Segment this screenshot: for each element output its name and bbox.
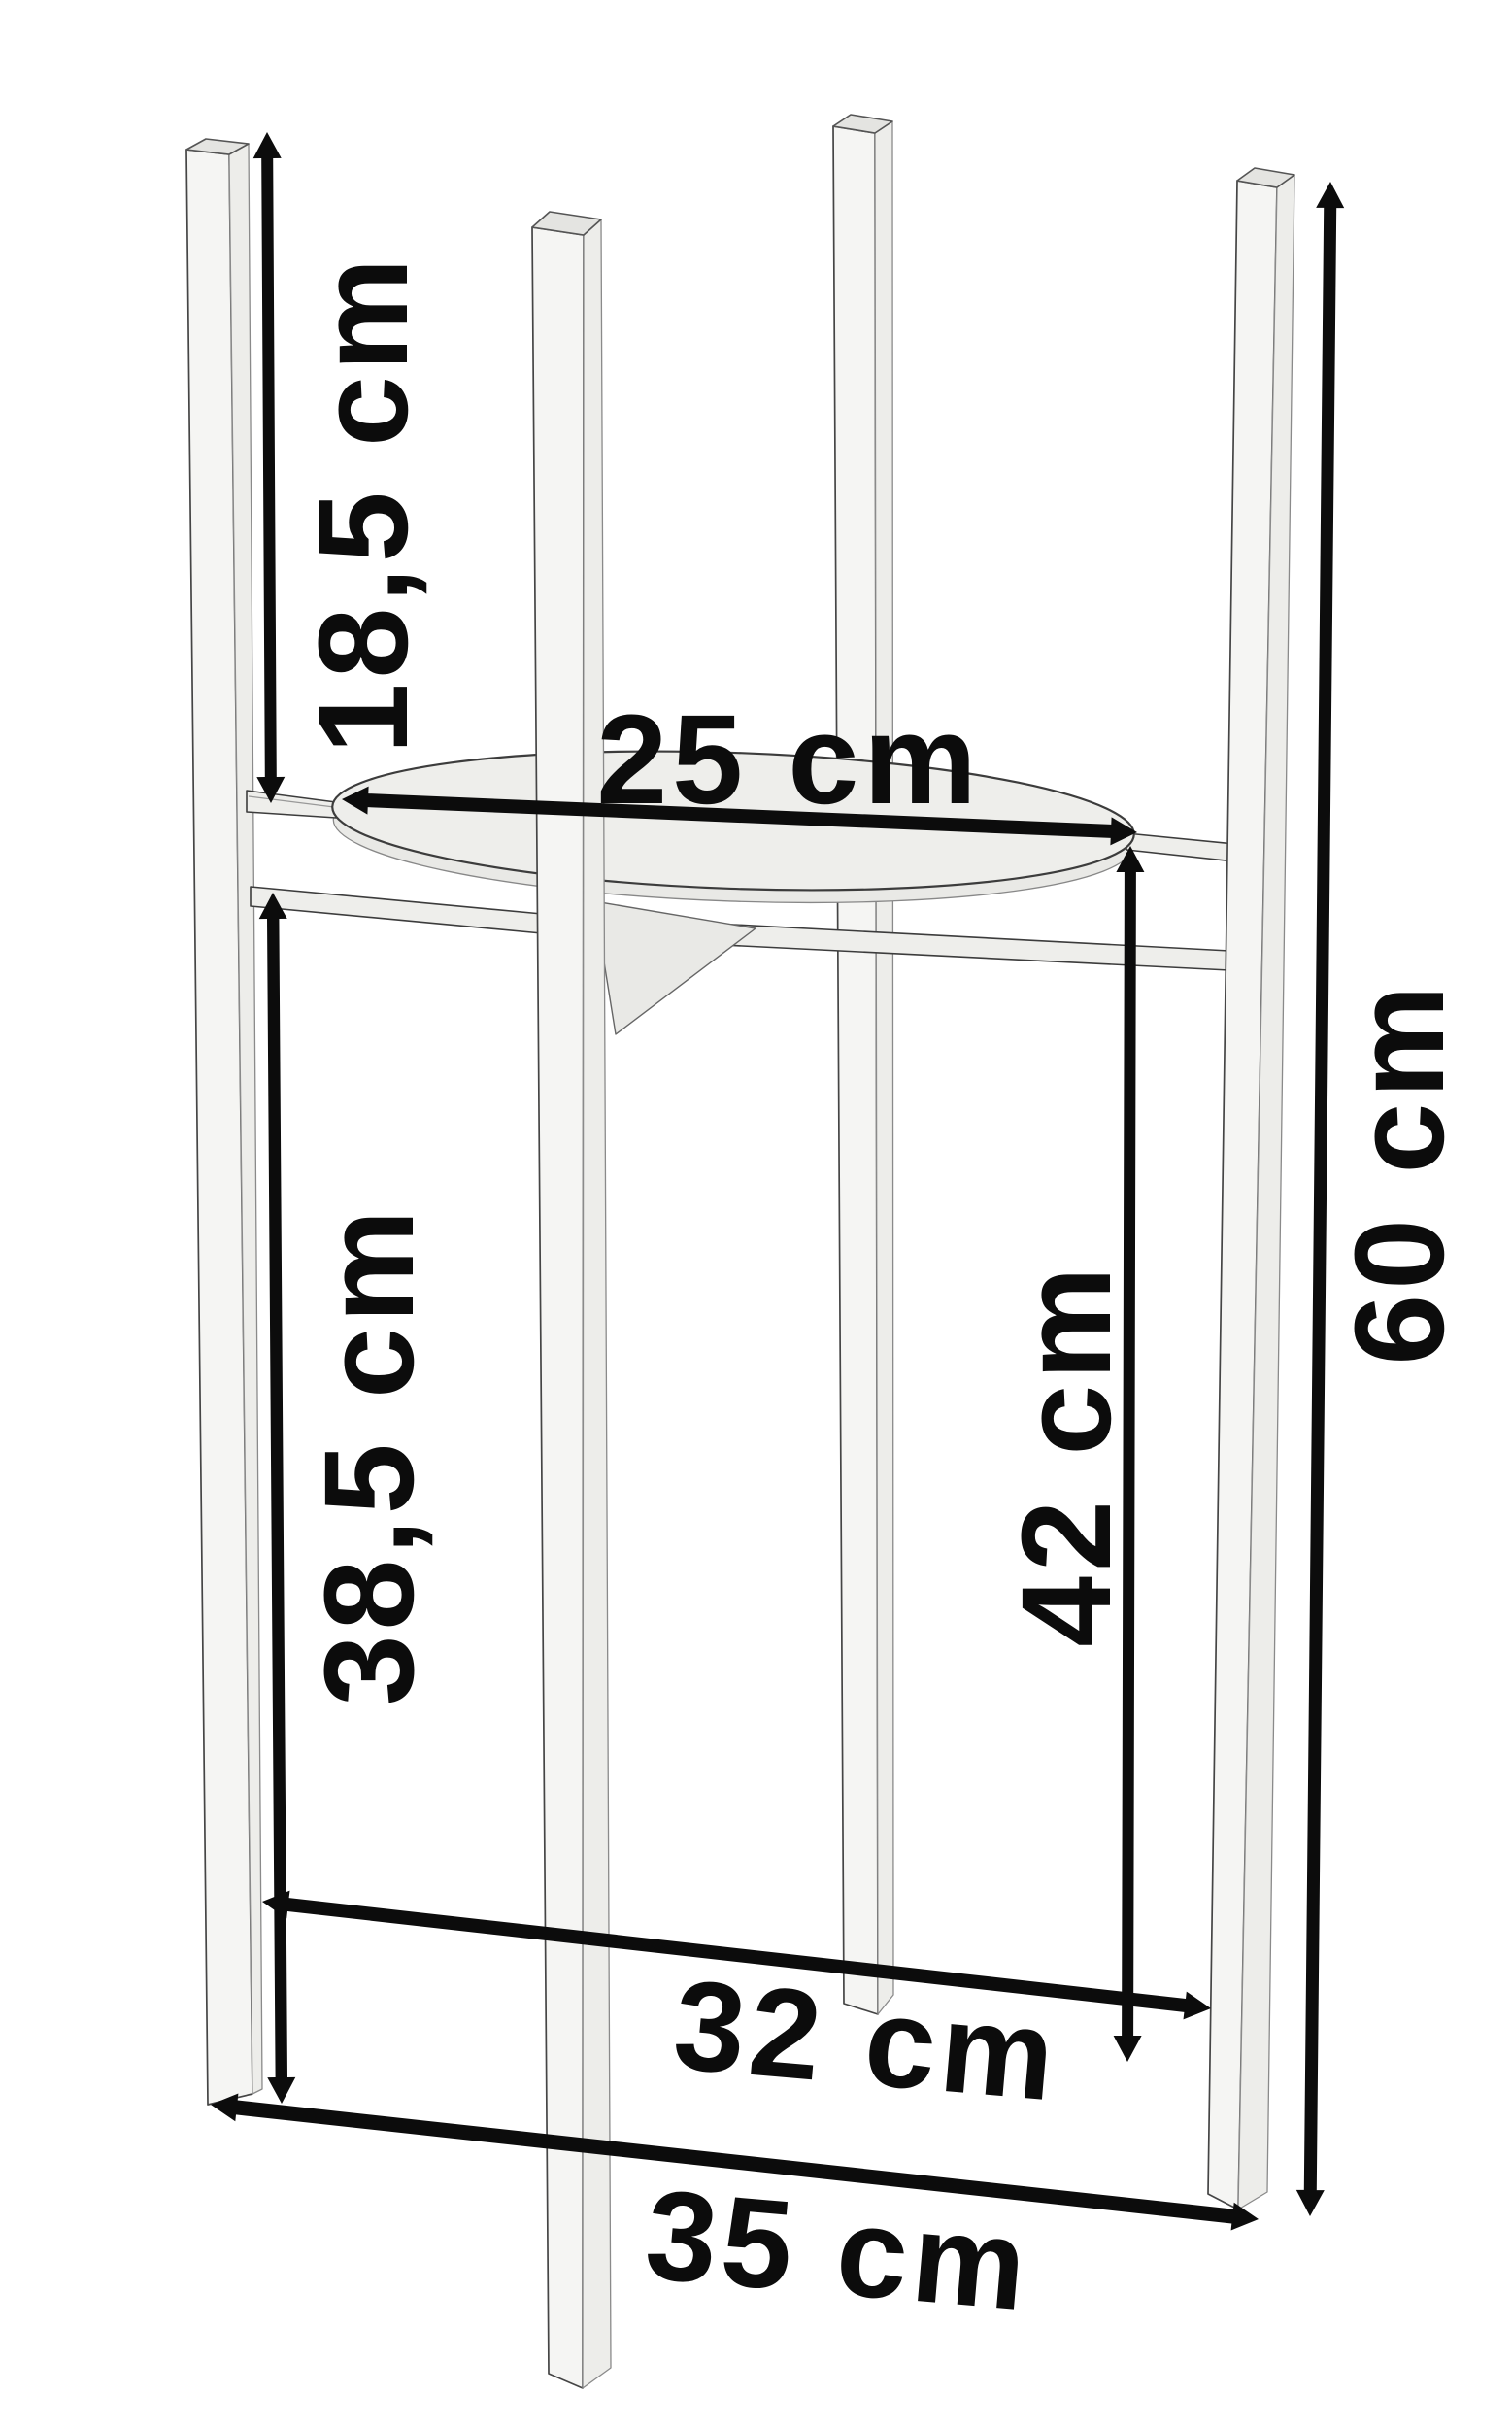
svg-text:42 cm: 42 cm xyxy=(994,1262,1137,1646)
svg-text:25 cm: 25 cm xyxy=(596,688,981,830)
svg-text:38,5 cm: 38,5 cm xyxy=(297,1205,440,1706)
svg-text:60 cm: 60 cm xyxy=(1327,980,1470,1365)
svg-text:18,5 cm: 18,5 cm xyxy=(291,253,434,755)
